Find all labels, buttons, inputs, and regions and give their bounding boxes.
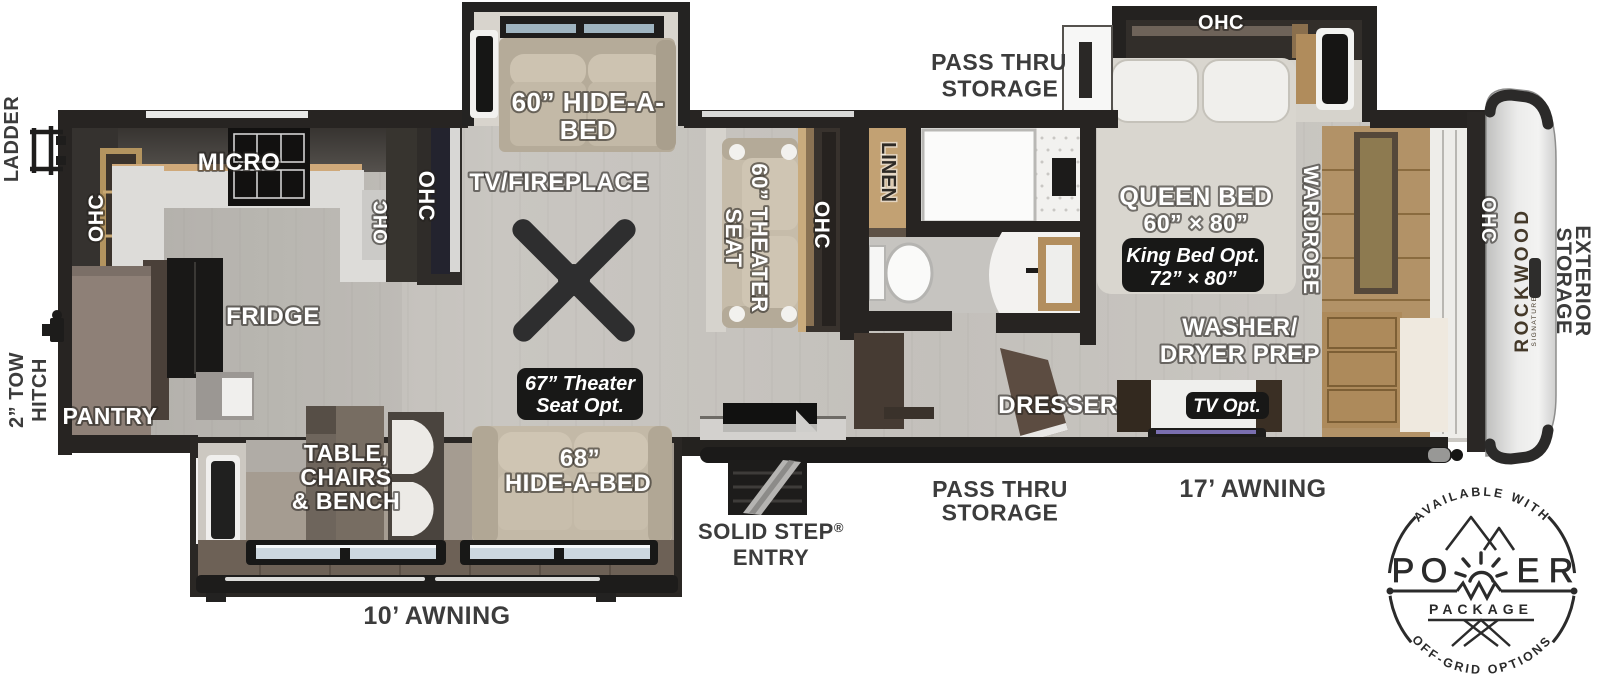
- svg-text:PACKAGE: PACKAGE: [1429, 601, 1533, 617]
- svg-text:E: E: [1517, 552, 1540, 590]
- svg-text:King Bed Opt.: King Bed Opt.: [1126, 245, 1259, 267]
- svg-text:DRYER PREP: DRYER PREP: [1160, 341, 1320, 368]
- svg-text:WARDROBE: WARDROBE: [1299, 166, 1322, 295]
- svg-text:OHC: OHC: [1198, 12, 1244, 34]
- svg-text:2” TOW: 2” TOW: [6, 352, 28, 428]
- svg-text:60” THEATER: 60” THEATER: [747, 163, 772, 312]
- svg-text:QUEEN BED: QUEEN BED: [1119, 183, 1272, 211]
- svg-text:OHC: OHC: [1477, 197, 1499, 243]
- svg-text:STORAGE: STORAGE: [942, 500, 1059, 526]
- svg-text:FRIDGE: FRIDGE: [226, 303, 320, 330]
- svg-text:P: P: [1392, 552, 1415, 590]
- svg-text:72” × 80”: 72” × 80”: [1149, 268, 1236, 290]
- svg-text:60” HIDE-A-: 60” HIDE-A-: [512, 87, 665, 117]
- svg-text:& BENCH: & BENCH: [292, 488, 400, 514]
- svg-text:67” Theater: 67” Theater: [525, 373, 636, 395]
- svg-text:TV Opt.: TV Opt.: [1193, 396, 1261, 417]
- svg-text:OHC: OHC: [414, 171, 439, 221]
- svg-text:HITCH: HITCH: [29, 358, 51, 422]
- svg-text:LINEN: LINEN: [877, 142, 899, 202]
- svg-text:R: R: [1549, 552, 1574, 590]
- svg-text:60” × 80”: 60” × 80”: [1144, 210, 1249, 236]
- svg-text:SEAT: SEAT: [721, 208, 746, 267]
- svg-text:SIGNATURE: SIGNATURE: [1531, 296, 1538, 347]
- svg-text:17’ AWNING: 17’ AWNING: [1179, 475, 1326, 503]
- svg-text:TV/FIREPLACE: TV/FIREPLACE: [469, 169, 648, 196]
- svg-text:STORAGE: STORAGE: [1552, 228, 1575, 335]
- svg-text:ROCKWOOD: ROCKWOOD: [1512, 207, 1533, 352]
- svg-text:10’ AWNING: 10’ AWNING: [363, 602, 510, 630]
- svg-text:BED: BED: [560, 115, 616, 145]
- svg-text:PANTRY: PANTRY: [63, 403, 158, 429]
- svg-text:SOLID STEP®: SOLID STEP®: [698, 519, 844, 544]
- svg-text:LADDER: LADDER: [1, 96, 23, 182]
- svg-text:OHC: OHC: [85, 194, 108, 242]
- svg-text:O: O: [1421, 552, 1447, 590]
- svg-text:HIDE-A-BED: HIDE-A-BED: [505, 470, 651, 497]
- svg-text:ENTRY: ENTRY: [733, 545, 809, 570]
- svg-text:DRESSER: DRESSER: [998, 392, 1118, 419]
- svg-text:PASS THRU: PASS THRU: [931, 49, 1067, 75]
- svg-text:PASS THRU: PASS THRU: [932, 476, 1068, 502]
- svg-text:STORAGE: STORAGE: [942, 76, 1059, 102]
- svg-text:68”: 68”: [560, 445, 600, 472]
- svg-text:Seat Opt.: Seat Opt.: [536, 395, 624, 417]
- svg-text:MICRO: MICRO: [198, 149, 281, 176]
- svg-text:WASHER/: WASHER/: [1182, 314, 1298, 341]
- svg-text:CHAIRS: CHAIRS: [300, 464, 391, 490]
- svg-text:OHC: OHC: [371, 200, 392, 244]
- svg-text:TABLE,: TABLE,: [304, 440, 388, 466]
- svg-text:OHC: OHC: [810, 201, 833, 249]
